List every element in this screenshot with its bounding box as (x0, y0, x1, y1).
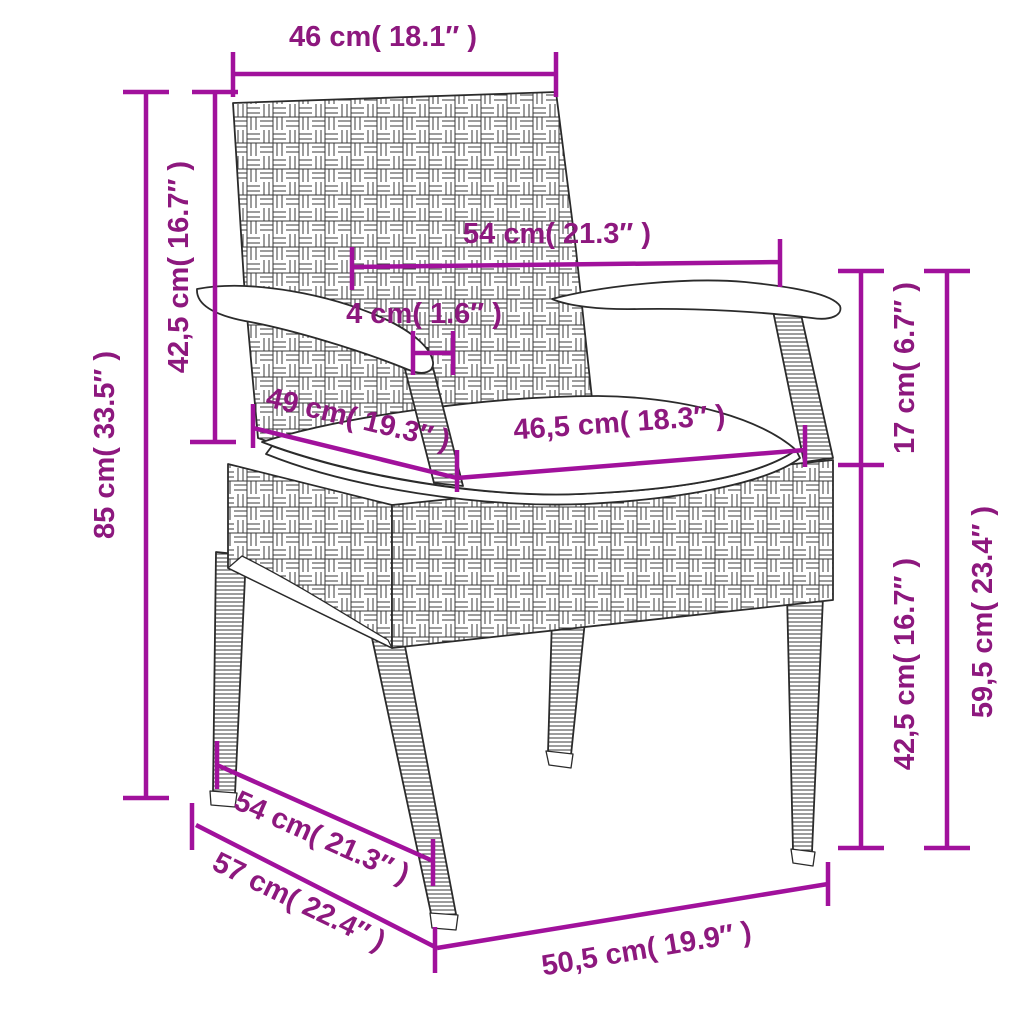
backrest-width-label: 46 cm( 18.1″ ) (289, 21, 477, 53)
dimension-armrest-above-seat: 17 cm( 6.7″ ) (838, 271, 921, 465)
seat-height-label: 42,5 cm( 16.7″ ) (889, 558, 921, 770)
chair-dimension-drawing: 46 cm( 18.1″ ) 54 cm( 21.3″ ) 4 cm( 1.6″… (0, 0, 1024, 1024)
dimension-diagram: 46 cm( 18.1″ ) 54 cm( 21.3″ ) 4 cm( 1.6″… (0, 0, 1024, 1024)
dimension-backrest-width: 46 cm( 18.1″ ) (233, 21, 556, 97)
chair-seat-box-left-face (228, 464, 392, 648)
dimension-front-width: 50,5 cm( 19.9″ ) (437, 862, 828, 982)
chair-armrest-right (552, 281, 840, 319)
chair-leg-front-right (787, 594, 823, 852)
backrest-height-label: 42,5 cm( 16.7″ ) (163, 161, 195, 373)
dimension-backrest-height: 42,5 cm( 16.7″ ) (163, 92, 238, 442)
chair-leg-back-right (548, 618, 585, 755)
total-height-label: 85 cm( 33.5″ ) (89, 351, 121, 539)
strut-width-label: 4 cm( 1.6″ ) (346, 298, 502, 330)
armrest-span-label: 54 cm( 21.3″ ) (463, 218, 651, 250)
chair-foot-back-right (546, 751, 573, 768)
dimension-total-height: 85 cm( 33.5″ ) (89, 92, 169, 798)
armrest-floor-height-label: 59,5 cm( 23.4″ ) (967, 506, 999, 718)
dimension-armrest-floor-height: 59,5 cm( 23.4″ ) (924, 271, 999, 848)
armrest-above-seat-label: 17 cm( 6.7″ ) (889, 282, 921, 454)
dimension-seat-height: 42,5 cm( 16.7″ ) (838, 465, 921, 848)
chair-foot-front-right (791, 849, 815, 866)
